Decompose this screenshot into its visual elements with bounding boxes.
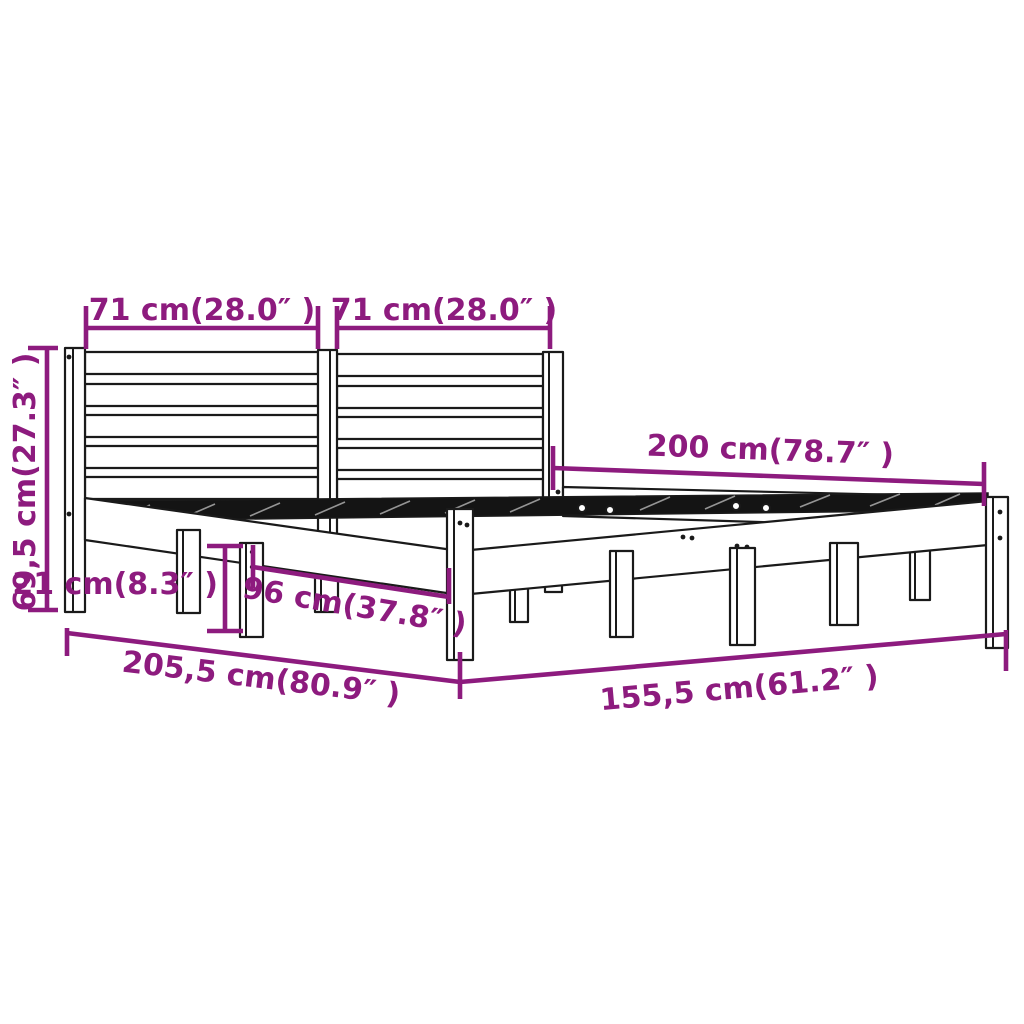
front-leg [830,543,858,625]
dimension-label-leg-height: 21 cm(8.3″ ) [12,567,218,602]
bed-frame-drawing [65,348,1008,660]
screw [556,490,561,495]
diagram-canvas: 71 cm(28.0″ ) 71 cm(28.0″ ) 200 cm(78.7″… [0,0,1024,1024]
dimension-label-headboard-right-width: 71 cm(28.0″ ) [331,293,558,328]
screw [67,355,72,360]
headboard-slat [85,477,318,499]
slat-bracket [732,502,740,510]
screw [998,510,1003,515]
screw [67,512,72,517]
front-leg [610,551,633,637]
headboard-slat [85,415,318,437]
dimension-label-headboard-left-width: 71 cm(28.0″ ) [89,293,316,328]
front-leg [730,548,755,645]
headboard-slat [337,386,543,408]
slat-bracket [606,506,614,514]
screw [998,536,1003,541]
slat-bracket [762,504,770,512]
slat-bracket [578,504,586,512]
headboard-slat [85,446,318,468]
headboard-right-bay [337,354,543,501]
screw [681,535,686,540]
headboard-slat [337,448,543,470]
screw [465,523,470,528]
screw [458,521,463,526]
headboard-slat [85,384,318,406]
headboard-left-bay [85,352,318,499]
dimension-label-frame-length: 200 cm(78.7″ ) [646,428,895,472]
screw [690,536,695,541]
headboard-slat [337,417,543,439]
headboard-slat [337,354,543,376]
dimension-label-total-length: 205,5 cm(80.9″ ) [120,645,402,713]
headboard-slat [85,352,318,374]
foot-end-post [986,497,1008,648]
bed-frame-dimension-diagram: 71 cm(28.0″ ) 71 cm(28.0″ ) 200 cm(78.7″… [0,0,1024,1024]
